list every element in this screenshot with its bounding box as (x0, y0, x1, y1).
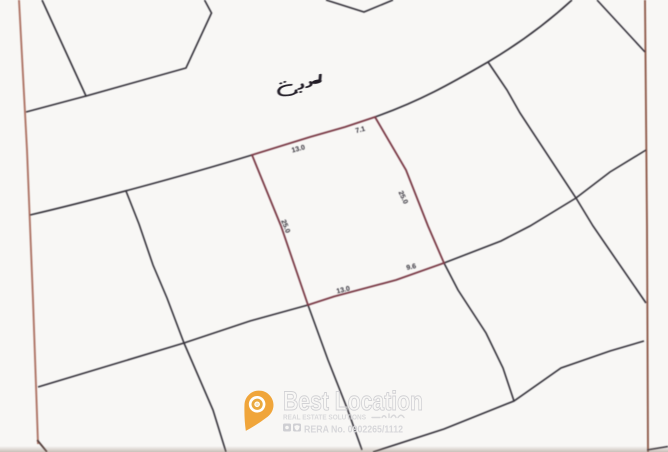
svg-text:RERA No. 0902265/1112: RERA No. 0902265/1112 (304, 424, 403, 436)
svg-text:REAL ESTATE SOLUTIONS: REAL ESTATE SOLUTIONS (283, 415, 366, 422)
svg-text:Best Location: Best Location (283, 386, 423, 416)
